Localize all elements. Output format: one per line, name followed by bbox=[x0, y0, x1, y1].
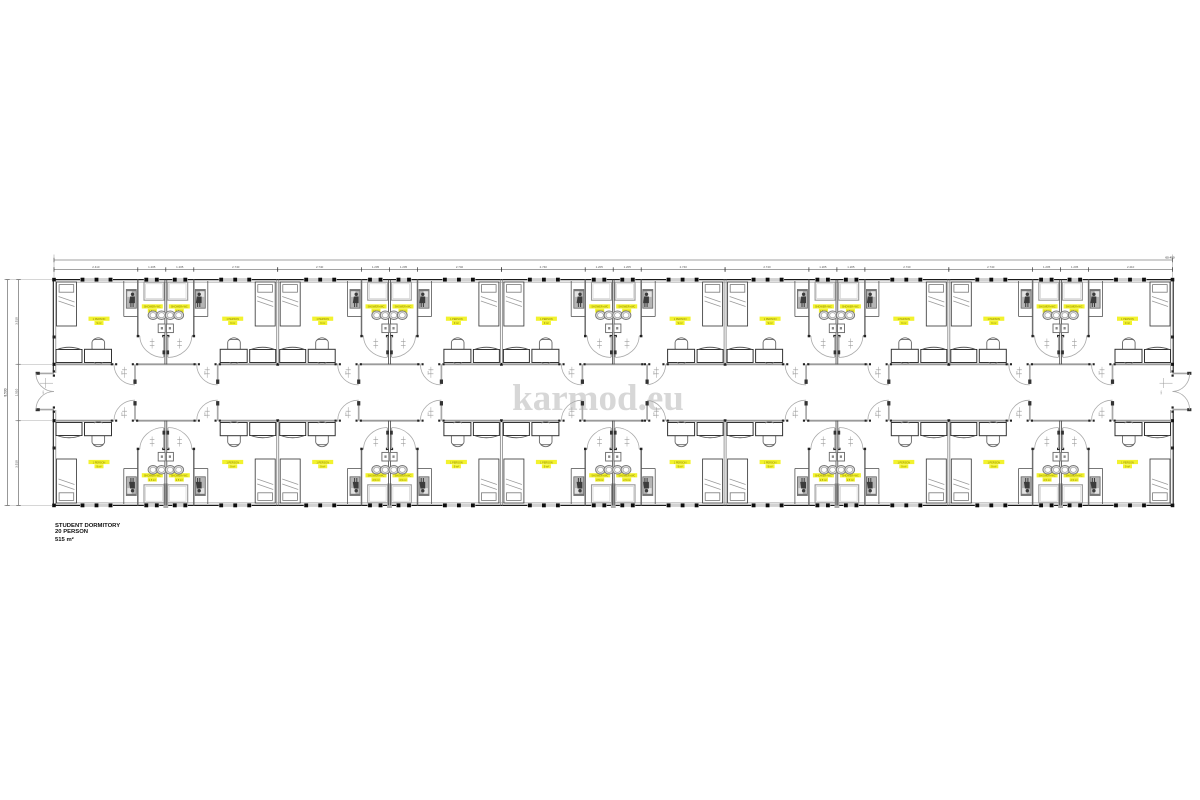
svg-text:9 m²: 9 m² bbox=[544, 322, 549, 325]
svg-text:1 PERSON: 1 PERSON bbox=[540, 461, 553, 464]
svg-text:9 m²: 9 m² bbox=[320, 322, 325, 325]
svg-text:2,5 m²: 2,5 m² bbox=[399, 479, 406, 482]
svg-text:1.205: 1.205 bbox=[148, 265, 156, 269]
svg-text:2,5 m²: 2,5 m² bbox=[149, 479, 156, 482]
svg-text:9 m²: 9 m² bbox=[1125, 322, 1130, 325]
svg-text:SHOWER+WC: SHOWER+WC bbox=[815, 306, 832, 309]
svg-text:9 m²: 9 m² bbox=[544, 466, 549, 469]
svg-text:1.205: 1.205 bbox=[596, 265, 604, 269]
svg-text:STUDENT DORMITORY: STUDENT DORMITORY bbox=[55, 523, 120, 529]
svg-text:1 PERSON: 1 PERSON bbox=[316, 318, 329, 321]
svg-text:9 m²: 9 m² bbox=[97, 322, 102, 325]
svg-text:1 PERSON: 1 PERSON bbox=[987, 318, 1000, 321]
svg-text:9 m²: 9 m² bbox=[230, 466, 235, 469]
svg-text:9 m²: 9 m² bbox=[768, 322, 773, 325]
svg-text:1 PERSON: 1 PERSON bbox=[93, 461, 106, 464]
svg-text:1 PERSON: 1 PERSON bbox=[316, 461, 329, 464]
svg-text:1 PERSON: 1 PERSON bbox=[764, 461, 777, 464]
svg-text:SHOWER+WC: SHOWER+WC bbox=[842, 475, 859, 478]
svg-text:3.510: 3.510 bbox=[15, 317, 19, 325]
svg-text:SHOWER+WC: SHOWER+WC bbox=[1066, 475, 1083, 478]
svg-text:2.740: 2.740 bbox=[232, 265, 240, 269]
svg-text:SHOWER+WC: SHOWER+WC bbox=[815, 475, 832, 478]
svg-text:SHOWER+WC: SHOWER+WC bbox=[395, 475, 412, 478]
svg-text:1 PERSON: 1 PERSON bbox=[897, 461, 910, 464]
svg-text:SHOWER+WC: SHOWER+WC bbox=[842, 306, 859, 309]
svg-text:1.205: 1.205 bbox=[819, 265, 827, 269]
svg-text:1.205: 1.205 bbox=[372, 265, 380, 269]
svg-text:1 PERSON: 1 PERSON bbox=[93, 318, 106, 321]
svg-text:SHOWER+WC: SHOWER+WC bbox=[144, 475, 161, 478]
svg-text:2.740: 2.740 bbox=[456, 265, 464, 269]
svg-text:1 PERSON: 1 PERSON bbox=[764, 318, 777, 321]
svg-text:1.205: 1.205 bbox=[624, 265, 632, 269]
svg-text:1.510: 1.510 bbox=[15, 388, 19, 396]
svg-text:SHOWER+WC: SHOWER+WC bbox=[395, 306, 412, 309]
svg-text:1 PERSON: 1 PERSON bbox=[540, 318, 553, 321]
svg-text:2.740: 2.740 bbox=[763, 265, 771, 269]
svg-text:SHOWER+WC: SHOWER+WC bbox=[368, 475, 385, 478]
svg-text:SHOWER+WC: SHOWER+WC bbox=[618, 306, 635, 309]
svg-text:2.740: 2.740 bbox=[987, 265, 995, 269]
svg-text:1 PERSON: 1 PERSON bbox=[450, 461, 463, 464]
svg-text:SHOWER+WC: SHOWER+WC bbox=[618, 475, 635, 478]
svg-text:9 m²: 9 m² bbox=[230, 322, 235, 325]
svg-text:60.400: 60.400 bbox=[1165, 255, 1175, 259]
svg-text:1 PERSON: 1 PERSON bbox=[987, 461, 1000, 464]
svg-text:9 m²: 9 m² bbox=[901, 466, 906, 469]
svg-text:2,5 m²: 2,5 m² bbox=[623, 479, 630, 482]
svg-text:1 PERSON: 1 PERSON bbox=[450, 318, 463, 321]
svg-text:9 m²: 9 m² bbox=[678, 322, 683, 325]
svg-text:9 m²: 9 m² bbox=[678, 466, 683, 469]
svg-text:2.410: 2.410 bbox=[92, 265, 100, 269]
svg-text:9 m²: 9 m² bbox=[991, 466, 996, 469]
svg-text:SHOWER+WC: SHOWER+WC bbox=[1039, 475, 1056, 478]
svg-text:9 m²: 9 m² bbox=[97, 466, 102, 469]
svg-text:9 m²: 9 m² bbox=[454, 466, 459, 469]
svg-text:2,5 m²: 2,5 m² bbox=[820, 479, 827, 482]
svg-text:1.205: 1.205 bbox=[1043, 265, 1051, 269]
svg-text:1 PERSON: 1 PERSON bbox=[1121, 461, 1134, 464]
svg-text:SHOWER+WC: SHOWER+WC bbox=[1066, 306, 1083, 309]
svg-text:1 PERSON: 1 PERSON bbox=[1121, 318, 1134, 321]
svg-text:1.205: 1.205 bbox=[1071, 265, 1079, 269]
svg-text:2,5 m²: 2,5 m² bbox=[596, 479, 603, 482]
svg-text:1.205: 1.205 bbox=[847, 265, 855, 269]
svg-text:3.510: 3.510 bbox=[15, 460, 19, 468]
svg-text:2,5 m²: 2,5 m² bbox=[372, 479, 379, 482]
svg-text:9 m²: 9 m² bbox=[320, 466, 325, 469]
svg-text:515 m²: 515 m² bbox=[55, 536, 74, 543]
svg-text:2,5 m²: 2,5 m² bbox=[1044, 479, 1051, 482]
svg-text:1 PERSON: 1 PERSON bbox=[226, 318, 239, 321]
svg-text:2,5 m²: 2,5 m² bbox=[1071, 479, 1078, 482]
svg-text:SHOWER+WC: SHOWER+WC bbox=[171, 306, 188, 309]
svg-text:2.740: 2.740 bbox=[316, 265, 324, 269]
svg-text:2.740: 2.740 bbox=[540, 265, 548, 269]
svg-text:9 m²: 9 m² bbox=[768, 466, 773, 469]
svg-text:SHOWER+WC: SHOWER+WC bbox=[171, 475, 188, 478]
svg-text:1 PERSON: 1 PERSON bbox=[226, 461, 239, 464]
svg-text:karmod.eu: karmod.eu bbox=[512, 378, 684, 419]
svg-text:2,5 m²: 2,5 m² bbox=[847, 479, 854, 482]
svg-text:SHOWER+WC: SHOWER+WC bbox=[591, 306, 608, 309]
svg-text:9 m²: 9 m² bbox=[991, 322, 996, 325]
svg-text:2.740: 2.740 bbox=[680, 265, 688, 269]
svg-text:SHOWER+WC: SHOWER+WC bbox=[591, 475, 608, 478]
svg-text:SHOWER+WC: SHOWER+WC bbox=[1039, 306, 1056, 309]
svg-text:1.205: 1.205 bbox=[176, 265, 184, 269]
svg-text:2,5 m²: 2,5 m² bbox=[176, 479, 183, 482]
svg-text:SHOWER+WC: SHOWER+WC bbox=[368, 306, 385, 309]
svg-text:SHOWER+WC: SHOWER+WC bbox=[144, 306, 161, 309]
svg-text:1.205: 1.205 bbox=[400, 265, 408, 269]
svg-text:9 m²: 9 m² bbox=[1125, 466, 1130, 469]
svg-text:1 PERSON: 1 PERSON bbox=[674, 461, 687, 464]
svg-text:9 m²: 9 m² bbox=[454, 322, 459, 325]
svg-text:9 m²: 9 m² bbox=[901, 322, 906, 325]
svg-text:2.740: 2.740 bbox=[903, 265, 911, 269]
svg-text:8.530: 8.530 bbox=[4, 388, 8, 396]
svg-text:2.410: 2.410 bbox=[1127, 265, 1135, 269]
svg-text:1 PERSON: 1 PERSON bbox=[674, 318, 687, 321]
svg-text:20 PERSON: 20 PERSON bbox=[55, 529, 88, 535]
svg-text:1 PERSON: 1 PERSON bbox=[897, 318, 910, 321]
